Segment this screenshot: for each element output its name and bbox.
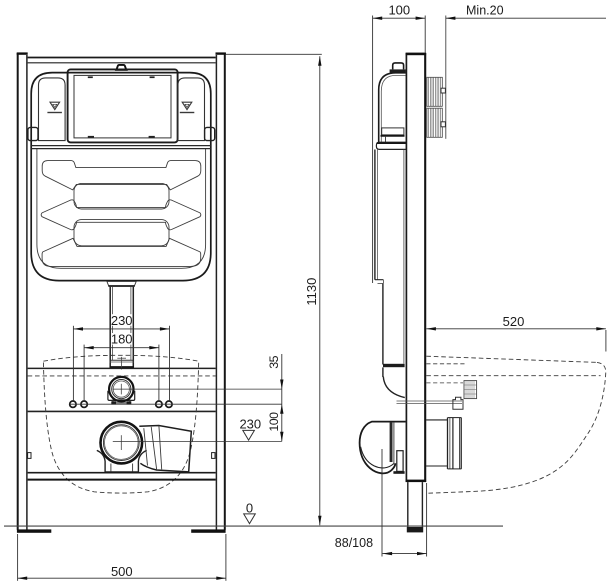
svg-text:500: 500 [111, 564, 133, 579]
svg-text:1130: 1130 [304, 278, 319, 306]
svg-text:88/108: 88/108 [335, 536, 373, 550]
svg-text:35: 35 [267, 355, 281, 368]
svg-text:0: 0 [246, 501, 253, 516]
svg-text:230: 230 [111, 313, 133, 328]
svg-text:Min.20: Min.20 [466, 3, 504, 17]
svg-text:100: 100 [388, 2, 410, 17]
svg-text:520: 520 [503, 314, 525, 329]
svg-text:100: 100 [267, 412, 281, 432]
svg-text:230: 230 [239, 416, 261, 431]
svg-text:180: 180 [111, 332, 133, 347]
